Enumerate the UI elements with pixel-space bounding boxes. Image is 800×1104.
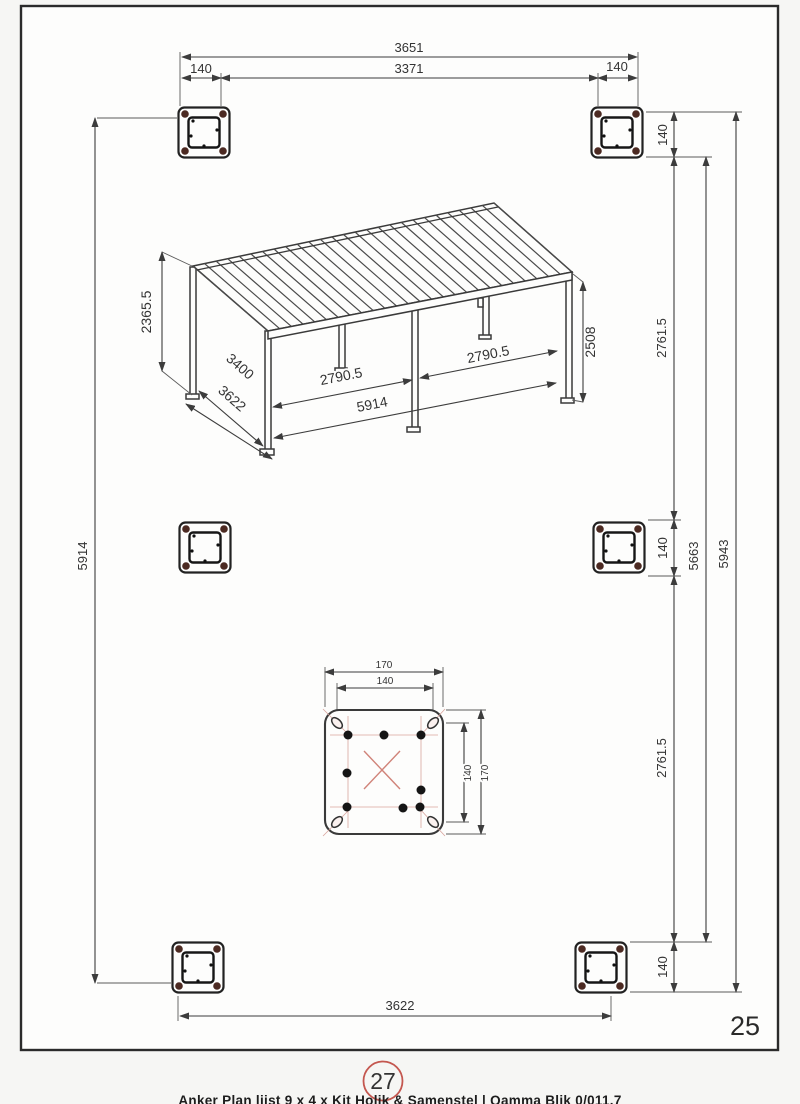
foundation-post-bottom-right	[576, 943, 627, 993]
dim-right-bottom-post: 140	[655, 956, 670, 978]
pergola-foot-front-mid	[407, 427, 420, 432]
pergola-leg-front-right	[566, 272, 572, 400]
dim-plate-height-outer: 170	[480, 764, 491, 781]
dim-right-lower-span: 2761.5	[654, 738, 669, 778]
foundation-post-mid-right	[594, 523, 645, 573]
dim-top-overall: 3651	[395, 40, 424, 55]
pergola-foot-back-right	[479, 335, 491, 339]
page-number: 25	[730, 1011, 760, 1041]
detail-reference-number: 27	[370, 1068, 396, 1094]
dim-right-mid-post: 140	[655, 537, 670, 559]
dim-top-inner: 3371	[395, 61, 424, 76]
dim-right-inner-total: 5663	[686, 542, 701, 571]
dim-left-total: 5914	[75, 542, 90, 571]
pergola-leg-back-left	[190, 267, 196, 396]
dim-top-left-offset: 140	[190, 61, 212, 76]
dim-right-top-post: 140	[655, 124, 670, 146]
dim-plate-height-inner: 140	[463, 764, 474, 781]
dim-plate-width-outer: 170	[376, 660, 393, 671]
dim-right-outer-total: 5943	[716, 540, 731, 569]
foundation-post-bottom-left	[173, 943, 224, 993]
foundation-post-top-left	[179, 108, 230, 158]
pergola-foot-front-right	[561, 398, 574, 403]
foundation-post-mid-left	[180, 523, 231, 573]
installation-drawing-page: 3651 140 3371 140 5914 140 2761.5 140 27…	[0, 0, 800, 1104]
dim-top-right-offset: 140	[606, 59, 628, 74]
foundation-post-top-right	[592, 108, 643, 158]
pergola-foot-front-left	[260, 449, 274, 455]
dim-plate-width-inner: 140	[377, 676, 394, 687]
dim-bottom-span: 3622	[386, 998, 415, 1013]
pergola-bracket-back-right	[478, 298, 483, 307]
page-border-frame	[21, 6, 778, 1050]
dim-pergola-height-front: 2508	[582, 326, 598, 357]
pergola-foot-back-left	[186, 394, 199, 399]
pergola-leg-front-left	[265, 331, 271, 451]
dim-pergola-height-rear: 2365.5	[138, 290, 154, 333]
dim-right-upper-span: 2761.5	[654, 318, 669, 358]
caption-partial-text: Anker Plan lijst 9 x 4 x Kit Holik & Sam…	[120, 1093, 680, 1104]
